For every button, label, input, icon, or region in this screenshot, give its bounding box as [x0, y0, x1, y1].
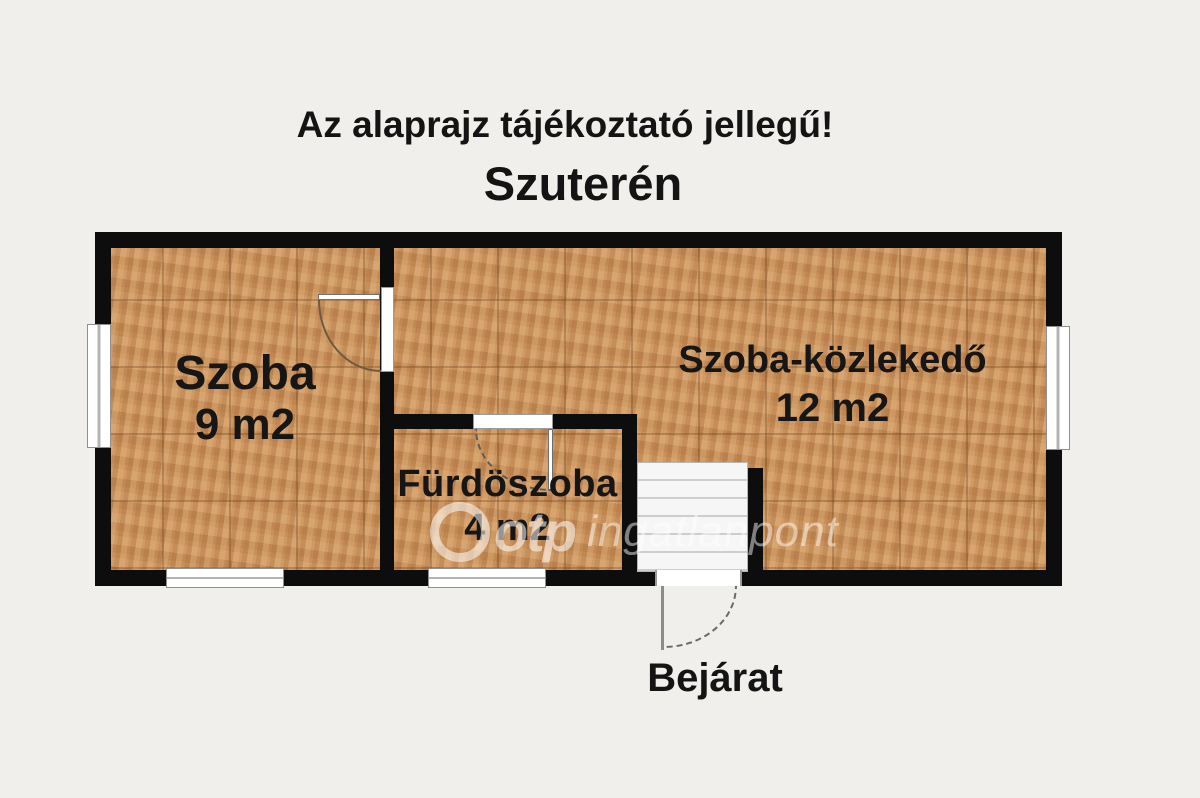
door-opening-szoba [381, 287, 394, 372]
room-label-furdoszoba: Fürdöszoba 4 m2 [380, 462, 635, 550]
disclaimer-text: Az alaprajz tájékoztató jellegű! [0, 104, 1130, 146]
window-left [87, 324, 111, 448]
window-right [1046, 326, 1070, 450]
door-swing-arc-entrance [664, 586, 737, 648]
wall-top [95, 232, 1062, 248]
window-bottom-szoba [166, 568, 284, 588]
room-area: 4 m2 [380, 506, 635, 550]
room-name: Szoba [110, 348, 380, 400]
staircase [637, 462, 748, 572]
room-name: Fürdöszoba [380, 462, 635, 506]
room-area: 12 m2 [645, 384, 1020, 432]
floorplan-page: Az alaprajz tájékoztató jellegű! Szuteré… [0, 0, 1200, 798]
entrance-opening [655, 570, 742, 586]
window-bottom-bathroom [428, 568, 546, 588]
entrance-label: Bejárat [595, 656, 835, 701]
door-opening-bathroom [473, 414, 553, 429]
room-label-szoba: Szoba 9 m2 [110, 348, 380, 450]
room-name: Szoba-közlekedő [645, 336, 1020, 384]
floor-title: Szuterén [0, 156, 1166, 211]
floor-plan: Szoba 9 m2 Fürdöszoba 4 m2 Szoba-közleke… [95, 232, 1062, 586]
room-label-szoba-kozlekedo: Szoba-közlekedő 12 m2 [645, 336, 1020, 432]
wall-stairs-right [748, 468, 763, 586]
room-area: 9 m2 [110, 400, 380, 450]
